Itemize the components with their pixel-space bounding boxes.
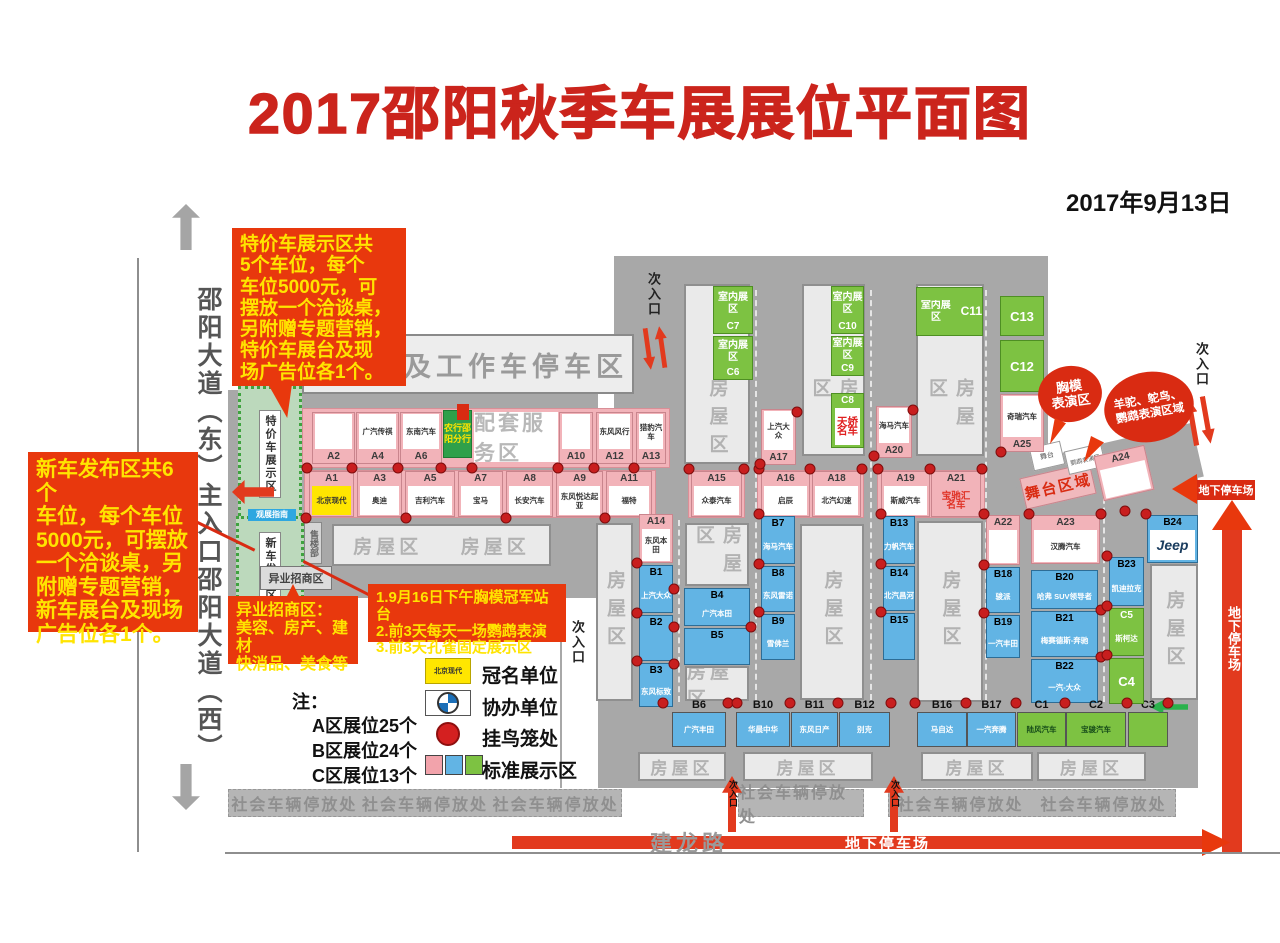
booth-C1: C1陆风汽车 xyxy=(1017,699,1066,748)
bird-cage-dot xyxy=(632,558,643,569)
bird-cage-dot xyxy=(857,464,868,475)
bird-cage-dot xyxy=(1102,650,1113,661)
booth-A2: A2 xyxy=(312,412,355,464)
bird-cage-dot xyxy=(754,607,765,618)
booth-C13: C13 xyxy=(1000,296,1044,336)
booth-B23: B23凯迪拉克 xyxy=(1109,557,1144,606)
floor-plan-poster: 2017邵阳秋季车展展位平面图 2017年9月13日 邵阳大道（东）主入口邵阳大… xyxy=(0,0,1280,943)
booth-B18: B18骏派 xyxy=(986,567,1020,613)
bird-cage-dot xyxy=(1024,509,1035,520)
annotation-special-car: 特价车展示区共 5个车位，每个 车位5000元，可 摆放一个洽谈桌， 另附赠专题… xyxy=(232,228,406,386)
housing-area: 房屋区房屋区 xyxy=(332,524,551,566)
booth-A18: A18北汽幻速 xyxy=(812,471,861,517)
booth-B21: B21梅赛德斯-奔驰 xyxy=(1031,611,1098,657)
bird-cage-dot xyxy=(347,463,358,474)
underground-parking-label-right: 地下停车场 xyxy=(1224,606,1243,671)
booth-A11: A11福特 xyxy=(606,471,652,517)
booth-B6: B6广汽丰田 xyxy=(672,699,726,748)
bird-cage-dot xyxy=(301,513,312,524)
booth-A20: 海马汽车A20 xyxy=(876,406,912,458)
road-dashed-line xyxy=(755,290,757,700)
annotation-cross-industry: 异业招商区： 美容、房产、建材 快消品、美食等 xyxy=(228,596,358,664)
bird-cage-dot xyxy=(925,464,936,475)
booth-B8: B8东风雷诺 xyxy=(761,566,795,612)
booth-C3: C3 xyxy=(1128,699,1168,748)
bird-cage-dot xyxy=(792,407,803,418)
underground-parking-label-bottom: 地下停车场 xyxy=(845,833,930,854)
annotation-new-car: 新车发布区共6个 车位，每个车位 5000元，可摆放 一个洽谈桌，另 附赠专题营… xyxy=(28,452,198,632)
booth-A16: A16启辰 xyxy=(761,471,810,517)
road-dashed-line xyxy=(1103,468,1105,702)
bird-cage-dot xyxy=(501,513,512,524)
bird-cage-dot xyxy=(669,659,680,670)
bird-cage-dot xyxy=(1060,698,1071,709)
housing-area: 房屋区 xyxy=(685,523,749,586)
bird-cage-dot xyxy=(632,608,643,619)
housing-area: 房屋区 xyxy=(921,752,1033,781)
booth-A25: 奇瑞汽车A25 xyxy=(1000,394,1044,452)
booth-B24: B24Jeep xyxy=(1147,515,1198,563)
booth-C12: C12 xyxy=(1000,340,1044,392)
bird-cage-dot xyxy=(869,451,880,462)
booth-C8: C8天娇 名车 xyxy=(831,393,864,448)
booth-A6: 东南汽车A6 xyxy=(400,412,442,464)
booth-C7: 室内展区C7 xyxy=(713,286,753,334)
bird-cage-dot xyxy=(401,513,412,524)
bird-cage-dot xyxy=(1122,698,1133,709)
bird-cage-dot xyxy=(754,559,765,570)
annotation-events: 1.9月16日下午胸模冠军站台 2.前3天每天一场鹦鹉表演 3.前3天孔雀固定展… xyxy=(368,584,566,642)
bird-cage-dot xyxy=(436,463,447,474)
booth-B22: B22一汽-大众 xyxy=(1031,659,1098,703)
booth-A9: A9东风悦达起亚 xyxy=(556,471,603,517)
booth-C10: 室内展区C10 xyxy=(831,286,864,334)
bird-cage-dot xyxy=(961,698,972,709)
bird-cage-dot xyxy=(755,459,766,470)
booth-B2: B2 xyxy=(639,615,673,661)
housing-area: 房屋区 xyxy=(800,524,864,700)
booth-B14: B14北汽昌河 xyxy=(883,566,915,611)
booth-A24: A24 xyxy=(1093,445,1154,502)
housing-area: 房屋区 xyxy=(917,521,983,702)
sub-entrance-label-bottom-1: 次入口 xyxy=(727,780,740,807)
booth-B10: B10华晨中华 xyxy=(736,699,790,748)
bird-cage-dot xyxy=(1120,506,1131,517)
bird-cage-dot xyxy=(589,463,600,474)
booth-A12: 东风风行A12 xyxy=(596,412,633,464)
bird-cage-dot xyxy=(908,405,919,416)
bird-cage-dot xyxy=(873,464,884,475)
booth-A4: 广汽传祺A4 xyxy=(356,412,399,464)
booth-A14: A14东风本田 xyxy=(639,514,673,563)
sub-entrance-label-bottom-2: 次入口 xyxy=(889,780,902,807)
bird-cage-dot xyxy=(393,463,404,474)
public-parking-band: 社会车辆停放处社会车辆停放处 xyxy=(888,789,1176,817)
booth-A8: A8长安汽车 xyxy=(506,471,553,517)
bird-cage-dot xyxy=(658,698,669,709)
booth-C11: 室内展区C11 xyxy=(916,287,983,336)
public-parking-band: 社会车辆停放处 xyxy=(738,789,864,817)
booth-B12: B12别克 xyxy=(839,699,890,748)
bird-cage-dot xyxy=(1011,698,1022,709)
bird-cage-dot xyxy=(629,463,640,474)
booth-A10: A10 xyxy=(559,412,593,464)
bird-cage-dot xyxy=(669,584,680,595)
booth-A3: A3奥迪 xyxy=(357,471,402,517)
bird-cage-dot xyxy=(1102,601,1113,612)
bird-cage-dot xyxy=(876,559,887,570)
bird-cage-dot xyxy=(876,607,887,618)
bird-cage-dot xyxy=(876,509,887,520)
bird-cage-dot xyxy=(684,464,695,475)
housing-area: 房屋区 xyxy=(1037,752,1146,781)
booth-A13: 猎豹汽车A13 xyxy=(636,412,666,464)
bird-cage-dot xyxy=(805,464,816,475)
booth-A17: 上汽大众A17 xyxy=(761,409,796,465)
bird-cage-dot xyxy=(977,464,988,475)
bird-cage-dot xyxy=(1096,509,1107,520)
booth-C9: 室内展区C9 xyxy=(831,336,864,376)
booth-A22: A22 xyxy=(986,515,1020,565)
booth-A7: A7宝马 xyxy=(458,471,503,517)
booth-C6: 室内展区C6 xyxy=(713,336,753,380)
booth-B9: B9雪佛兰 xyxy=(761,614,795,660)
booth-A15: A15众泰汽车 xyxy=(691,471,742,517)
booth-B5: B5 xyxy=(684,628,750,665)
booth-A19: A19斯威汽车 xyxy=(881,471,930,517)
booth-C2: C2宝骏汽车 xyxy=(1066,699,1126,748)
bird-cage-dot xyxy=(669,622,680,633)
bird-cage-dot xyxy=(910,698,921,709)
booth-B7: B7海马汽车 xyxy=(761,516,795,564)
bird-cage-dot xyxy=(746,622,757,633)
bird-cage-dot xyxy=(996,447,1007,458)
booth-B11: B11东风日产 xyxy=(791,699,838,748)
booth-A5: A5吉利汽车 xyxy=(405,471,455,517)
bird-cage-dot xyxy=(979,509,990,520)
booth-B20: B20哈弗 SUV领导者 xyxy=(1031,570,1098,609)
bird-cage-dot xyxy=(553,463,564,474)
road-dashed-line xyxy=(678,520,680,702)
bird-cage-dot xyxy=(1163,698,1174,709)
bird-cage-dot xyxy=(632,656,643,667)
bird-cage-dot xyxy=(1102,551,1113,562)
housing-area: 房屋区 xyxy=(1150,564,1198,700)
booth-B19: B19一汽丰田 xyxy=(986,615,1020,658)
bird-cage-dot xyxy=(1141,509,1152,520)
booth-B17: B17一汽奔腾 xyxy=(967,699,1016,748)
underground-parking-tag: 地下停车场 xyxy=(1197,480,1255,500)
bird-cage-dot xyxy=(886,698,897,709)
bird-cage-dot xyxy=(600,513,611,524)
bird-cage-dot xyxy=(467,463,478,474)
booth-C5: C5斯柯达 xyxy=(1109,608,1144,656)
booth-A23: A23汉腾汽车 xyxy=(1031,515,1100,564)
bird-cage-dot xyxy=(979,608,990,619)
road-dashed-line xyxy=(870,290,872,700)
bird-cage-dot xyxy=(739,464,750,475)
bird-cage-dot xyxy=(979,560,990,571)
bird-cage-dot xyxy=(732,698,743,709)
booth-B16: B16马自达 xyxy=(917,699,967,748)
housing-area: 房屋区 xyxy=(685,666,749,701)
booth-A1: A1北京现代 xyxy=(309,471,354,517)
booth-B4: B4广汽本田 xyxy=(684,588,750,626)
guide-tag: 观展指南 xyxy=(248,509,296,521)
housing-area: 房屋区 xyxy=(596,523,633,701)
housing-area: 房屋区 xyxy=(638,752,726,781)
bird-cage-dot xyxy=(833,698,844,709)
housing-area: 房屋区 xyxy=(743,752,873,781)
booth-A21: A21宝驰汇 名车 xyxy=(931,471,981,517)
bird-cage-dot xyxy=(754,509,765,520)
bird-cage-dot xyxy=(785,698,796,709)
bird-cage-dot xyxy=(302,463,313,474)
booth-B15: B15 xyxy=(883,613,915,660)
booth-B13: B13力帆汽车 xyxy=(883,516,915,564)
public-parking-band: 社会车辆停放处社会车辆停放处社会车辆停放处 xyxy=(228,789,622,817)
